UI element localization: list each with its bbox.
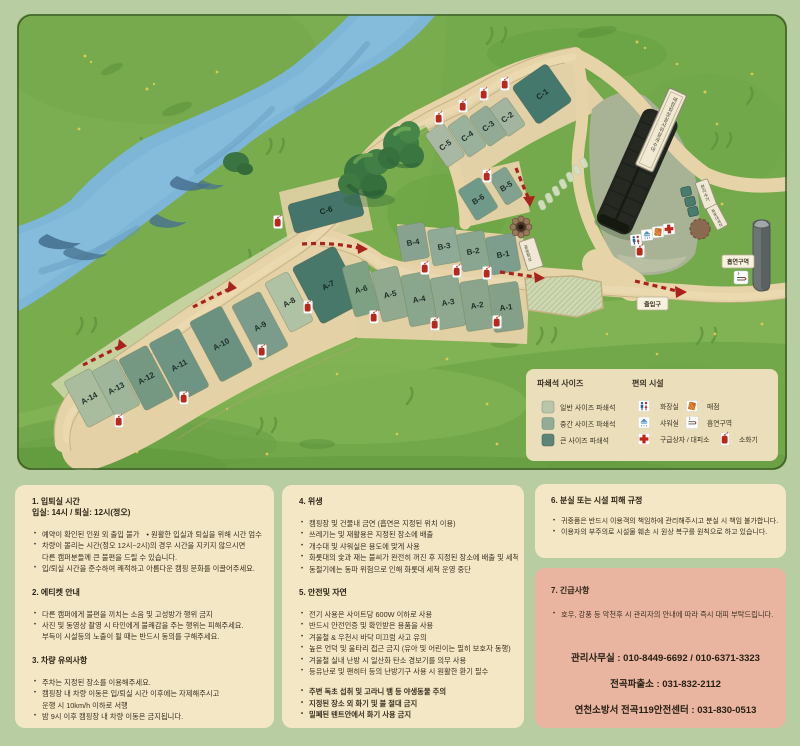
svg-text:A-1: A-1 xyxy=(499,302,514,313)
svg-text:화장실: 화장실 xyxy=(660,402,679,411)
svg-text:편의 시설: 편의 시설 xyxy=(632,378,664,388)
svg-text:파쇄석 사이즈: 파쇄석 사이즈 xyxy=(537,378,584,388)
svg-text:큰 사이즈 파쇄석: 큰 사이즈 파쇄석 xyxy=(560,436,609,445)
svg-text:구급상자 / 대피소: 구급상자 / 대피소 xyxy=(660,435,709,444)
svg-text:흡연구역: 흡연구역 xyxy=(727,258,749,266)
svg-text:흡연구역: 흡연구역 xyxy=(707,419,732,428)
svg-text:일반 사이즈 파쇄석: 일반 사이즈 파쇄석 xyxy=(560,403,615,412)
svg-text:소화기: 소화기 xyxy=(739,435,758,444)
svg-text:매점: 매점 xyxy=(707,403,720,411)
svg-text:샤워실: 샤워실 xyxy=(660,419,679,428)
svg-text:중간 사이즈 파쇄석: 중간 사이즈 파쇄석 xyxy=(560,420,615,429)
svg-text:출입구: 출입구 xyxy=(644,301,661,309)
